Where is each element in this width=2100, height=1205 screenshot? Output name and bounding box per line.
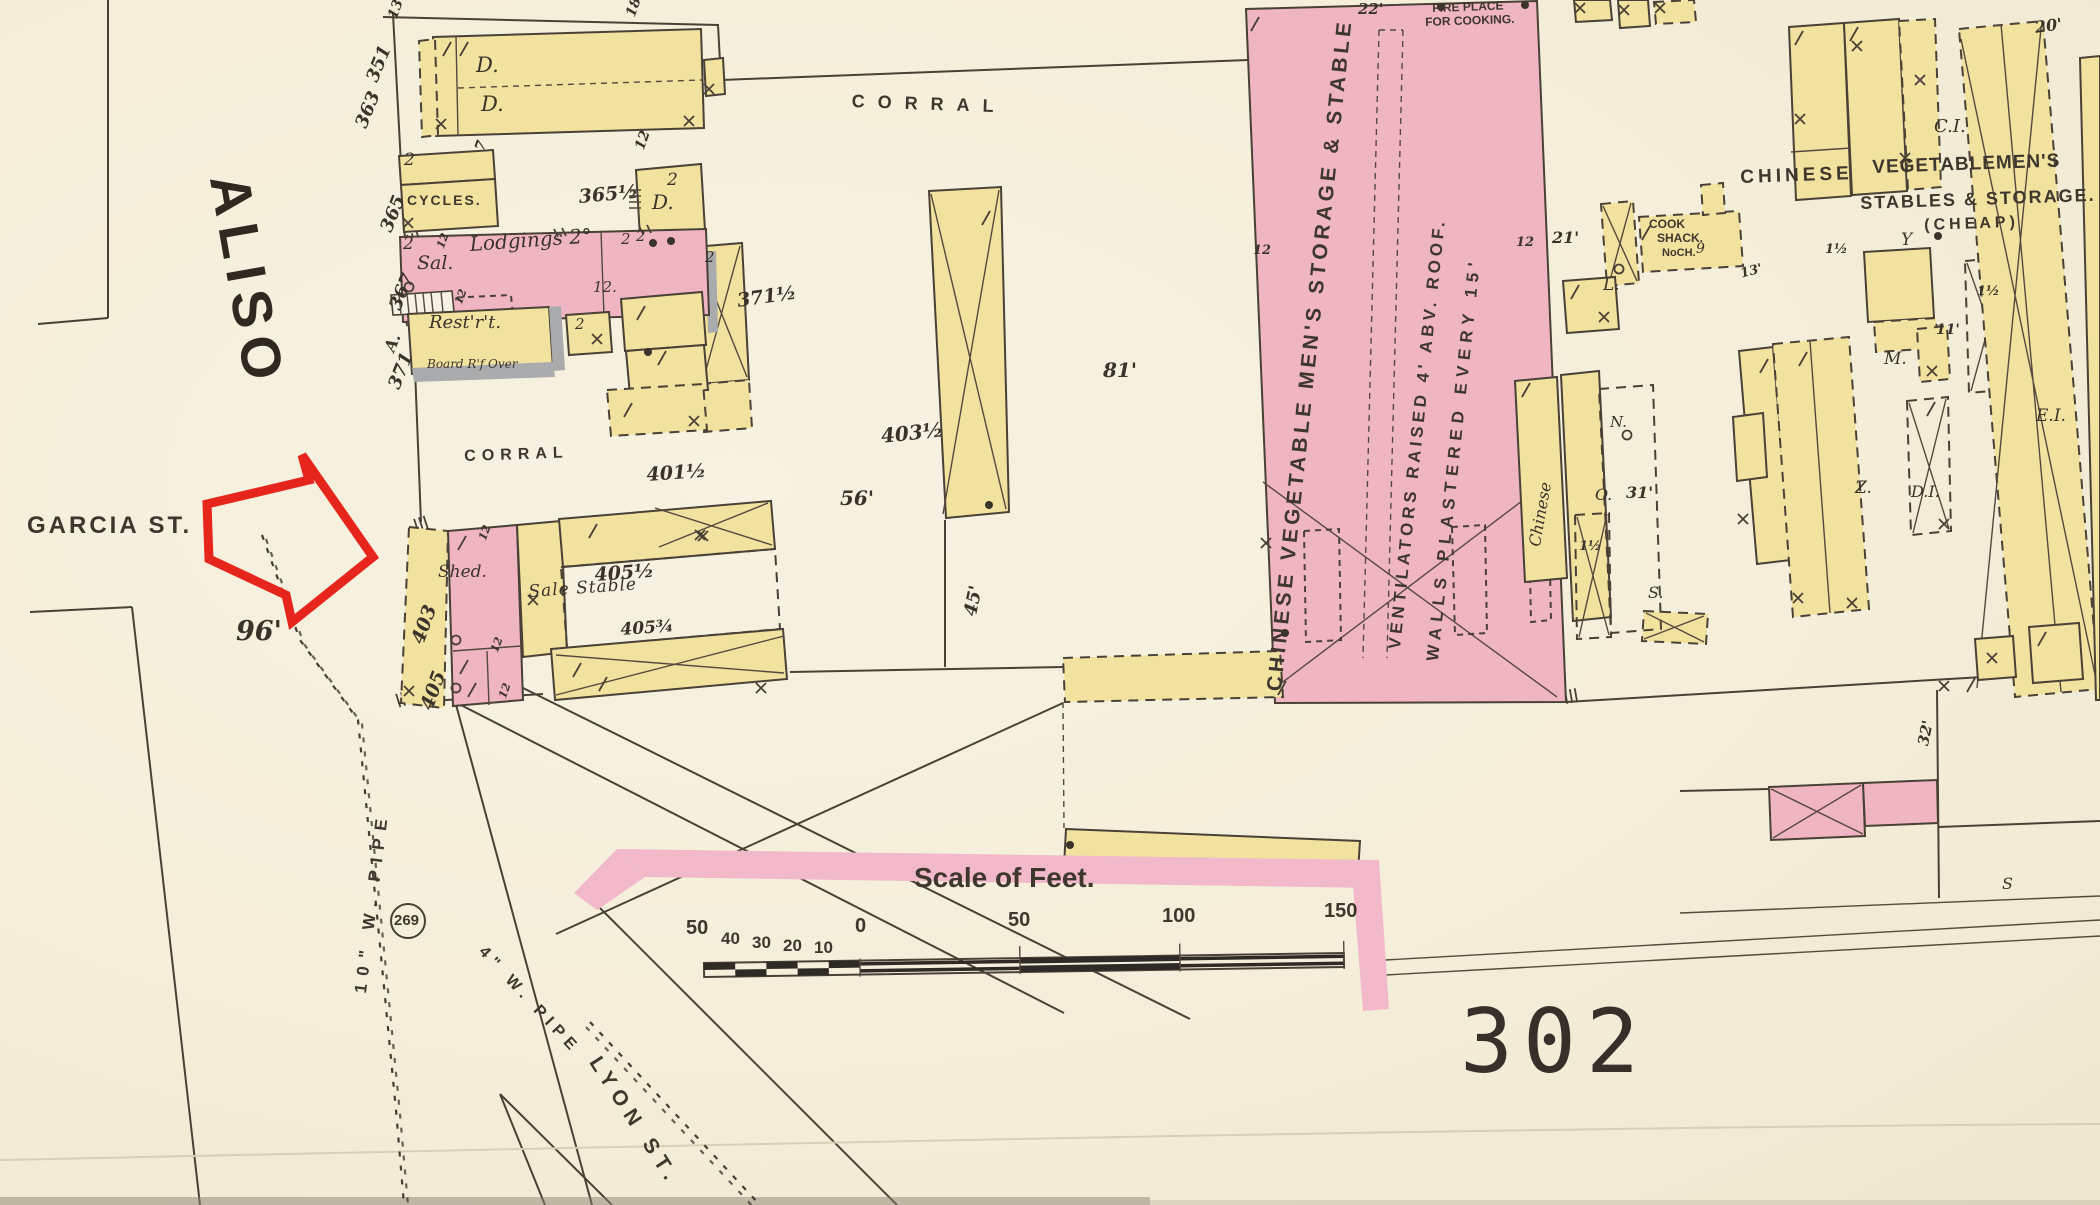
dim-12h: 12 bbox=[1253, 244, 1271, 257]
bldg-dwelling-2: D. bbox=[481, 94, 504, 115]
bldg-shed: Shed. bbox=[438, 564, 487, 581]
addr-403half: 403½ bbox=[880, 419, 944, 445]
building-shed bbox=[448, 525, 523, 706]
bldg-vegmen-4: (CHEAP) bbox=[1924, 215, 2019, 234]
scale-10: 10 bbox=[814, 939, 833, 956]
label-L: L. bbox=[1603, 277, 1620, 294]
story-2f: 2 bbox=[705, 250, 715, 265]
pink-storage-building bbox=[1063, 1, 1708, 872]
label-DI: D.I. bbox=[1911, 484, 1940, 500]
dim-56: 56' bbox=[840, 488, 874, 508]
dim-1half-c: 1½ bbox=[1579, 540, 1602, 553]
addr-405half: 405½ bbox=[594, 562, 655, 585]
dim-22: 22' bbox=[1358, 2, 1383, 17]
addr-365half: 365½ bbox=[578, 183, 639, 207]
story-2d: 2 bbox=[621, 232, 631, 247]
scale-50l: 50 bbox=[686, 918, 708, 938]
scale-20: 20 bbox=[783, 937, 802, 954]
scale-0: 0 bbox=[855, 916, 866, 936]
dim-1half-b: 1½ bbox=[1977, 285, 2000, 298]
red-arrow-annotation bbox=[207, 455, 373, 622]
building-dwelling-row bbox=[433, 29, 704, 136]
dim-12b: 12. bbox=[593, 280, 617, 295]
bldg-cookshack-1: COOK bbox=[1649, 218, 1685, 230]
building-chinese-strip bbox=[1515, 377, 1567, 582]
label-CI: C.I. bbox=[1934, 118, 1966, 136]
dim-96: 96' bbox=[236, 618, 282, 645]
label-S-edge: S bbox=[2002, 876, 2013, 892]
street-garcia: GARCIA ST. bbox=[27, 514, 192, 538]
bldg-vegmen-1: CHINESE bbox=[1740, 164, 1853, 187]
label-M: M. bbox=[1884, 351, 1907, 368]
scale-40: 40 bbox=[721, 930, 740, 947]
scale-30: 30 bbox=[752, 934, 771, 951]
bldg-restaurant: Rest'r't. bbox=[429, 314, 501, 332]
dim-21: 21' bbox=[1552, 230, 1579, 246]
bldg-dwelling-1: D. bbox=[476, 55, 499, 76]
dim-1half-a: 1½ bbox=[1825, 243, 1848, 256]
hydrant-269: 269 bbox=[394, 913, 419, 928]
addr-405threequarter: 405¾ bbox=[620, 618, 674, 639]
dim-81: 81' bbox=[1103, 360, 1137, 380]
dim-31: 31' bbox=[1626, 485, 1653, 501]
bldg-cycles: CYCLES. bbox=[407, 193, 482, 207]
dim-12i: 12 bbox=[1516, 236, 1534, 249]
dim-11: 11' bbox=[1936, 323, 1960, 337]
label-Y: Y bbox=[1901, 232, 1912, 249]
story-2c: 2 bbox=[403, 236, 414, 253]
label-O: O. bbox=[1595, 487, 1612, 503]
story-2e: 2 bbox=[636, 229, 646, 244]
bldg-cookshack-3: NoCH. bbox=[1662, 248, 1696, 259]
label-N: N. bbox=[1610, 415, 1627, 430]
label-9: 9 bbox=[1696, 242, 1705, 256]
scale-150: 150 bbox=[1324, 901, 1357, 921]
story-2a: 2 bbox=[404, 152, 415, 169]
scale-title: Scale of Feet. bbox=[914, 864, 1095, 892]
map-canvas: ALISOGARCIA ST.LYON ST.96'302Scale of Fe… bbox=[0, 0, 2100, 1205]
label-Z: Z. bbox=[1855, 480, 1872, 497]
label-EI: E.I. bbox=[2036, 408, 2066, 425]
note-fireplace-2: FOR COOKING. bbox=[1425, 13, 1515, 28]
bldg-saloon: Sal. bbox=[417, 254, 453, 273]
addr-401half: 401½ bbox=[646, 462, 707, 485]
note-board-roof: Board R'f Over bbox=[427, 358, 517, 370]
label-S: S. bbox=[1648, 585, 1663, 601]
story-2g: 2 bbox=[575, 317, 585, 332]
right-block bbox=[1515, 0, 2100, 840]
scale-100: 100 bbox=[1162, 906, 1195, 926]
story-2b: 2 bbox=[667, 172, 678, 189]
dim-20: 20' bbox=[2034, 16, 2063, 36]
bldg-dwelling-3: D. bbox=[652, 192, 674, 212]
scale-50: 50 bbox=[1008, 910, 1030, 930]
sheet-number: 302 bbox=[1460, 998, 1649, 1086]
